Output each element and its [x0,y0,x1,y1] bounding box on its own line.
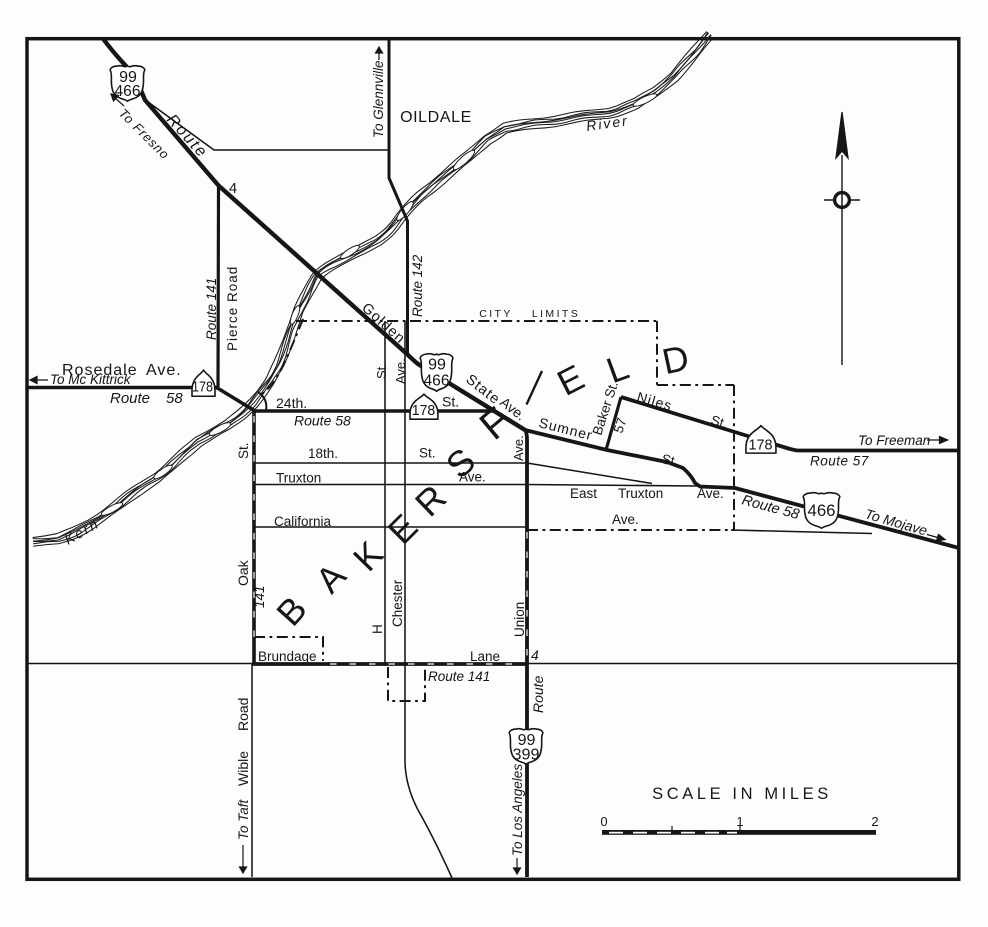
svg-text:Route: Route [110,390,150,407]
svg-text:LIMITS: LIMITS [532,308,580,320]
svg-text:178: 178 [749,437,773,454]
svg-text:Route 141: Route 141 [204,278,219,340]
svg-text:0: 0 [600,814,607,829]
svg-text:To Mc Kittrick: To Mc Kittrick [50,372,132,387]
svg-text:Union: Union [512,602,527,637]
svg-text:466: 466 [808,502,836,520]
svg-text:St.: St. [374,363,389,379]
svg-text:Truxton: Truxton [276,471,321,486]
svg-text:St.: St. [419,446,436,461]
svg-text:Ave.: Ave. [146,362,182,379]
svg-text:SCALE IN MILES: SCALE IN MILES [652,785,832,803]
svg-text:18th.: 18th. [308,446,338,461]
svg-text:178: 178 [192,379,213,396]
svg-text:Ave.: Ave. [697,486,724,501]
svg-text:99: 99 [428,357,446,374]
svg-text:58: 58 [166,390,183,407]
svg-text:Oak: Oak [235,559,251,586]
svg-text:Route 58: Route 58 [294,413,351,429]
svg-text:399: 399 [513,747,540,764]
svg-text:St.: St. [442,394,459,410]
svg-text:Ave.: Ave. [511,435,526,461]
svg-text:To Freeman: To Freeman [858,433,930,448]
svg-text:Brundage: Brundage [258,649,317,664]
svg-text:2: 2 [871,814,878,829]
svg-text:To Los Angeles: To Los Angeles [510,764,525,856]
svg-text:OILDALE: OILDALE [400,109,472,126]
svg-text:To Glennville: To Glennville [371,60,386,138]
svg-text:Chester: Chester [390,579,405,627]
svg-text:CITY: CITY [479,308,513,320]
svg-text:Pierce Road: Pierce Road [225,266,240,351]
svg-text:4: 4 [229,181,237,197]
svg-text:Road: Road [235,698,251,731]
svg-text:4: 4 [531,647,539,663]
svg-text:Truxton: Truxton [618,486,663,501]
svg-text:St.: St. [236,442,251,459]
svg-text:178: 178 [412,402,436,419]
svg-text:H: H [370,624,385,634]
svg-text:To Taft: To Taft [236,798,251,840]
svg-text:Ave.: Ave. [612,512,639,527]
svg-text:Route 57: Route 57 [810,454,869,469]
svg-text:Route 142: Route 142 [410,254,425,317]
svg-text:Lane: Lane [470,649,500,664]
svg-text:466: 466 [115,83,141,100]
svg-text:Route: Route [530,675,546,713]
svg-text:East: East [570,486,597,501]
svg-text:Route 141: Route 141 [428,669,490,684]
svg-text:Ave.: Ave. [393,358,408,384]
svg-text:Wible: Wible [235,751,251,786]
svg-text:141: 141 [252,585,267,608]
svg-text:California: California [274,514,332,529]
svg-text:466: 466 [424,373,450,390]
svg-text:24th.: 24th. [276,395,307,411]
